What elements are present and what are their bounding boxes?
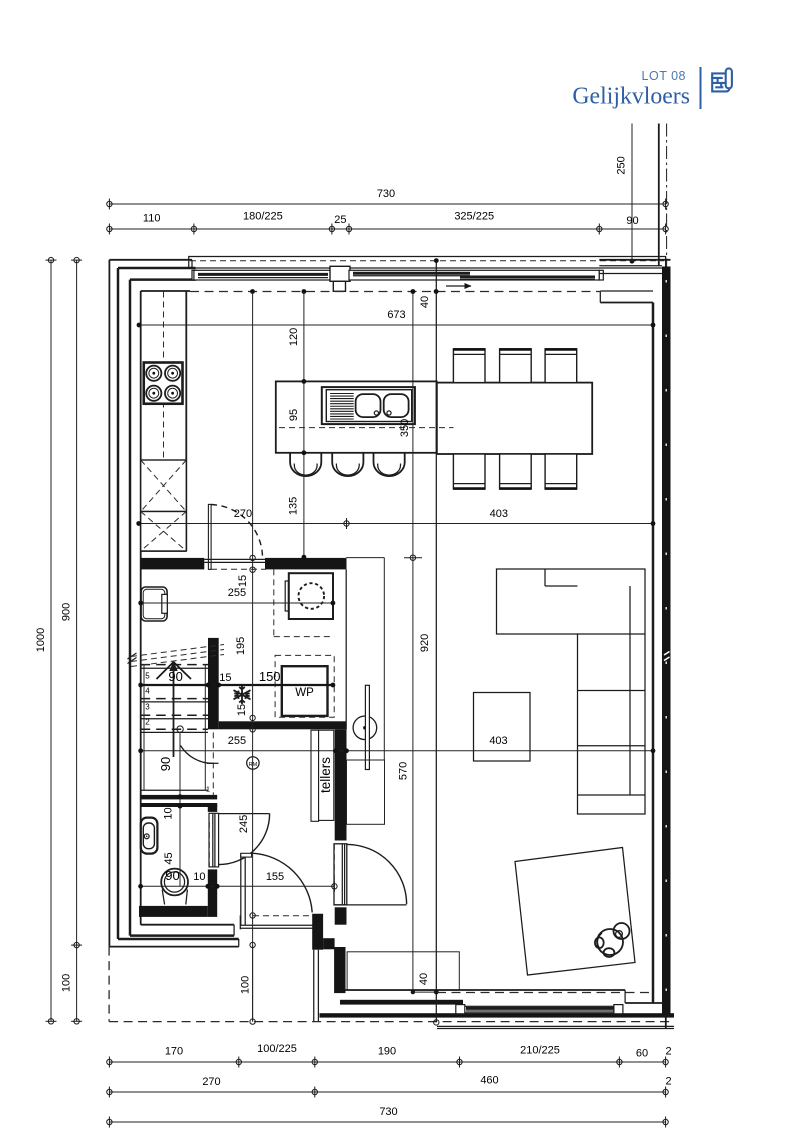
- svg-text:15: 15: [236, 704, 248, 716]
- svg-text:2: 2: [145, 718, 150, 727]
- svg-text:255: 255: [228, 735, 246, 747]
- svg-text:250: 250: [616, 156, 628, 174]
- svg-text:730: 730: [379, 1106, 397, 1118]
- svg-text:95: 95: [288, 409, 300, 421]
- svg-text:100: 100: [240, 976, 252, 994]
- svg-text:180/225: 180/225: [243, 211, 283, 223]
- svg-text:1000: 1000: [35, 628, 47, 652]
- svg-text:25: 25: [334, 214, 346, 226]
- svg-text:255: 255: [228, 587, 246, 599]
- svg-text:730: 730: [377, 188, 395, 200]
- svg-text:270: 270: [202, 1076, 220, 1088]
- svg-text:1: 1: [206, 785, 210, 794]
- svg-text:40: 40: [418, 973, 430, 985]
- svg-text:5: 5: [145, 672, 150, 681]
- svg-text:Gelijkvloers: Gelijkvloers: [572, 84, 690, 110]
- svg-text:150: 150: [259, 669, 281, 684]
- svg-text:RM: RM: [249, 762, 258, 768]
- svg-text:900: 900: [61, 603, 73, 621]
- svg-text:920: 920: [419, 634, 431, 652]
- svg-text:60: 60: [636, 1048, 648, 1060]
- svg-text:tellers: tellers: [318, 757, 333, 793]
- svg-text:120: 120: [288, 328, 300, 346]
- svg-text:90: 90: [165, 868, 179, 883]
- svg-text:LOT 08: LOT 08: [642, 69, 686, 83]
- svg-text:100: 100: [61, 974, 73, 992]
- svg-text:90: 90: [168, 669, 182, 684]
- svg-text:10: 10: [193, 871, 205, 883]
- svg-text:15: 15: [219, 672, 231, 684]
- svg-text:673: 673: [387, 309, 405, 321]
- svg-text:245: 245: [238, 815, 250, 833]
- svg-text:570: 570: [398, 762, 410, 780]
- svg-text:270: 270: [234, 508, 252, 520]
- svg-text:4: 4: [145, 687, 150, 696]
- svg-text:460: 460: [480, 1075, 498, 1087]
- svg-text:403: 403: [490, 508, 508, 520]
- svg-text:325/225: 325/225: [454, 211, 494, 223]
- svg-text:190: 190: [378, 1046, 396, 1058]
- svg-text:45: 45: [163, 852, 175, 864]
- svg-text:2: 2: [665, 1076, 671, 1088]
- svg-text:WP: WP: [295, 687, 314, 699]
- svg-text:210/225: 210/225: [520, 1045, 560, 1057]
- svg-text:403: 403: [489, 735, 507, 747]
- svg-text:3: 3: [145, 703, 150, 712]
- svg-text:10: 10: [163, 807, 175, 819]
- svg-text:110: 110: [143, 213, 161, 225]
- svg-text:135: 135: [288, 497, 300, 515]
- svg-text:350: 350: [399, 419, 411, 437]
- svg-text:2: 2: [665, 1046, 671, 1058]
- svg-text:155: 155: [266, 871, 284, 883]
- svg-text:100/225: 100/225: [257, 1043, 297, 1055]
- svg-text:15: 15: [237, 575, 249, 587]
- svg-text:90: 90: [158, 757, 173, 771]
- svg-text:40: 40: [419, 296, 431, 308]
- svg-text:195: 195: [235, 637, 247, 655]
- svg-text:170: 170: [165, 1046, 183, 1058]
